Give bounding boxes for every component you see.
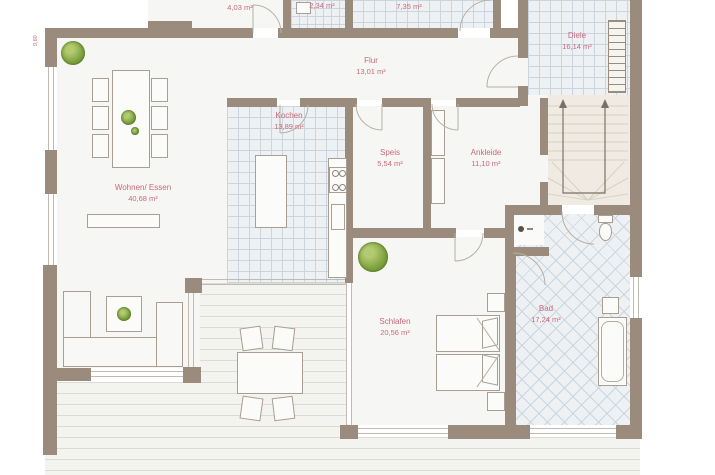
wall-post [340, 425, 358, 439]
dining-chair [151, 78, 168, 102]
wall-segment [594, 205, 630, 215]
wall-segment [616, 425, 642, 439]
room-name: Schlafen [379, 316, 410, 327]
dining-chair [92, 78, 109, 102]
room-b-tiles [352, 0, 493, 28]
room-area: 7,35 m² [396, 1, 421, 12]
bathroom-sink [602, 297, 619, 314]
wall-segment [45, 150, 57, 194]
wall-segment [283, 0, 291, 30]
room-name: Kochen [274, 110, 304, 121]
room-area: 11,10 m² [471, 158, 502, 169]
terrace-chair [272, 396, 296, 421]
floor-plan: 4,03 m² WC 2,34 m² 7,35 m² Diele 16,14 m… [0, 0, 715, 475]
nightstand [487, 293, 505, 312]
terrace-chair [240, 326, 264, 352]
shelf-ladder [608, 20, 626, 93]
burner-icon [332, 184, 339, 191]
wall-segment [57, 368, 91, 381]
wall-segment [278, 28, 458, 38]
wall-segment [43, 265, 57, 455]
bedroom-plant-icon [358, 242, 388, 272]
room-label-bad: Bad 17,24 m² [531, 303, 561, 325]
room-name: Wohnen/ Essen [115, 182, 171, 193]
wall-segment [345, 0, 353, 30]
window-sofa-room [91, 371, 183, 377]
window-bottom-2 [530, 428, 616, 434]
room-label-speis: Speis 5,54 m² [377, 147, 402, 169]
toilet-tank [598, 215, 613, 223]
room-name: Bad [531, 303, 561, 314]
room-area: 17,24 m² [531, 314, 561, 325]
window-right-bath [633, 277, 639, 318]
room-label-flur: Flur 13,01 m² [356, 55, 386, 77]
room-name: Flur [356, 55, 386, 66]
room-area: 13,89 m² [274, 121, 304, 132]
room-label-wc: WC 2,34 m² [309, 0, 334, 11]
wardrobe [431, 110, 445, 156]
window-left-2 [48, 194, 54, 265]
wall-segment [227, 98, 277, 107]
wall-segment [340, 228, 456, 238]
burner-icon [339, 184, 346, 191]
window-bedroom-terrace [346, 283, 352, 425]
table-plant-icon [121, 110, 136, 125]
drain-mark [527, 228, 533, 230]
dining-chair [92, 134, 109, 158]
room-label-schlafen: Schlafen 20,56 m² [379, 316, 410, 338]
dimension-label: 9,60 [33, 35, 39, 46]
room-label-diele: Diele 16,14 m² [562, 30, 592, 52]
nightstand [487, 392, 505, 411]
dining-chair [151, 106, 168, 130]
toilet [599, 223, 612, 241]
terrace-chair [272, 326, 296, 351]
room-label-room-b: 7,35 m² [396, 1, 421, 12]
wall-segment [148, 21, 192, 29]
kitchen-island [255, 155, 287, 228]
sofa-right-arm [156, 302, 183, 367]
terrace-deck-bottom [45, 437, 640, 475]
room-area: 20,56 m² [379, 327, 410, 338]
room-area: 16,14 m² [562, 41, 592, 52]
bathtub-inner [601, 321, 624, 382]
room-area: 2,34 m² [309, 0, 334, 11]
table-plant-icon [131, 127, 139, 135]
room-area: 5,54 m² [377, 158, 402, 169]
wall-segment [505, 247, 516, 428]
wall-segment [518, 0, 528, 58]
window-bottom-1 [358, 428, 448, 434]
bed-pillow [482, 317, 498, 348]
window-living-terrace [188, 293, 194, 367]
burner-icon [339, 170, 346, 177]
wall-segment [630, 0, 642, 277]
dining-chair [92, 106, 109, 130]
room-name: Diele [562, 30, 592, 41]
wall-post [185, 278, 202, 293]
room-area: 40,68 m² [115, 193, 171, 204]
kitchen-sink [331, 204, 345, 230]
floor-drain-icon [518, 226, 524, 232]
dining-chair [151, 134, 168, 158]
wall-segment [45, 28, 253, 38]
terrace-table [237, 352, 303, 394]
tree-plant-icon [61, 41, 85, 65]
room-label-ankleide: Ankleide 11,10 m² [471, 147, 502, 169]
wall-segment [630, 318, 642, 430]
wall-segment [505, 205, 562, 215]
room-label-kochen: Kochen 13,89 m² [274, 110, 304, 132]
coffee-table-plant-icon [117, 307, 131, 321]
wall-post [183, 367, 201, 383]
terrace-deck-left [57, 382, 200, 437]
wall-segment [493, 0, 501, 30]
burner-icon [332, 170, 339, 177]
staircase-floor [548, 95, 630, 205]
wall-segment [540, 98, 548, 155]
room-label-room-a: 4,03 m² [227, 2, 252, 13]
wardrobe [431, 158, 445, 204]
room-area: 4,03 m² [227, 2, 252, 13]
room-area: 13,01 m² [356, 66, 386, 77]
sideboard [87, 214, 160, 228]
room-name: Speis [377, 147, 402, 158]
terrace-chair [240, 396, 264, 422]
wall-segment [448, 425, 530, 439]
room-label-wohnen-essen: Wohnen/ Essen 40,68 m² [115, 182, 171, 204]
room-name: Ankleide [471, 147, 502, 158]
window-left-1 [48, 67, 54, 150]
bed-pillow [482, 354, 498, 385]
wall-segment [423, 98, 431, 234]
window-kitchen-terrace [202, 279, 346, 285]
wall-segment [456, 98, 520, 107]
